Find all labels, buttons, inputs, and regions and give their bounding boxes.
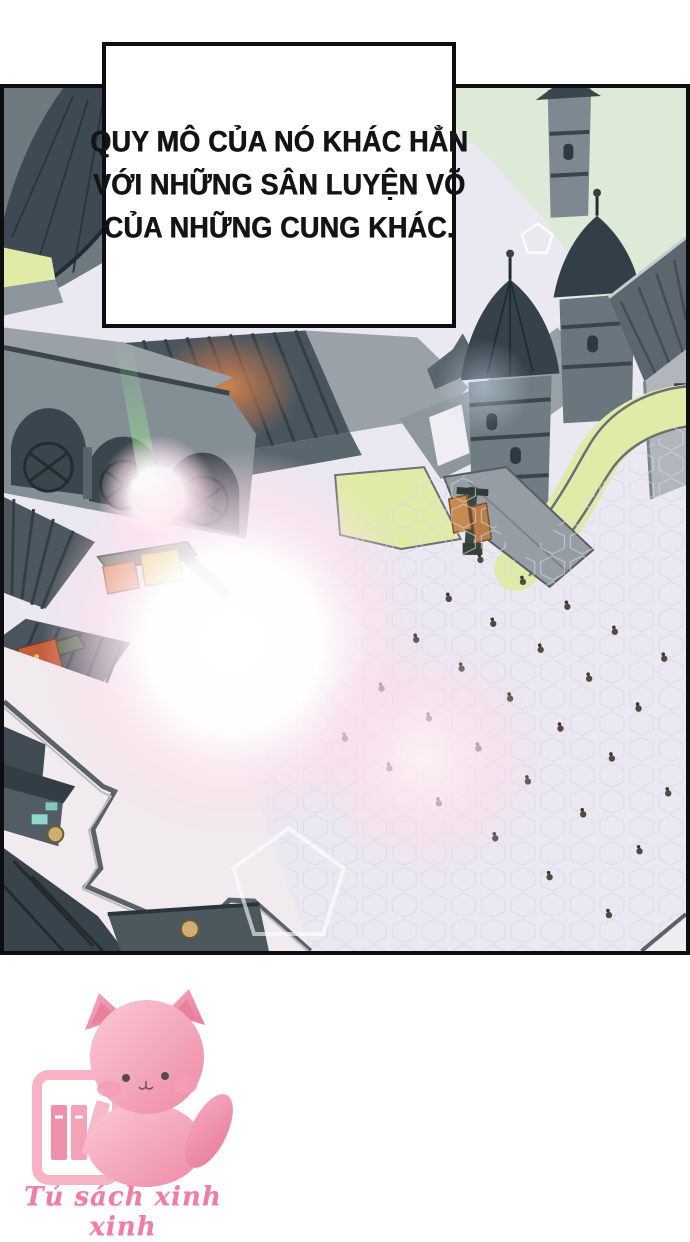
cat-eye-left	[122, 1074, 130, 1082]
narration-line-3: CỦA NHỮNG CUNG KHÁC.	[104, 205, 455, 251]
narration-box: QUY MÔ CỦA NÓ KHÁC HẲN VỚI NHỮNG SÂN LUY…	[102, 42, 456, 328]
publisher-mascot	[25, 985, 240, 1190]
mascot-cat	[85, 989, 240, 1187]
narration-line-1: QUY MÔ CỦA NÓ KHÁC HẲN	[90, 119, 468, 165]
cat-eye-right	[161, 1072, 169, 1080]
publisher-logo-text: Tủ sách xinh xinh	[8, 1182, 238, 1242]
narration-line-2: VỚI NHỮNG SÂN LUYỆN VÕ	[93, 162, 465, 208]
mascot-cat-and-bookshelf	[25, 985, 240, 1190]
